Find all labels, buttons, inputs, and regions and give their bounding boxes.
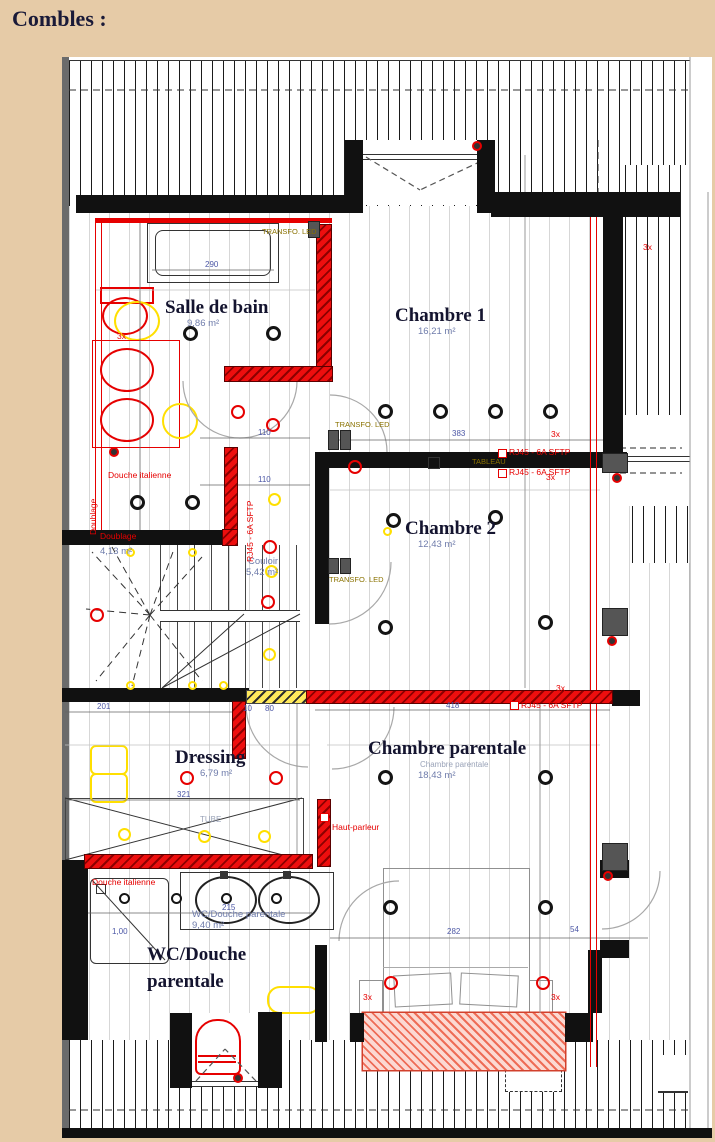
pillow-1	[393, 973, 453, 1008]
dim-dressing: 321	[177, 790, 190, 799]
wall-wc-right	[315, 945, 327, 1042]
label-douche-italienne-1: Douche italienne	[108, 470, 171, 480]
label-rj45-vertical: RJ45 - 6A SFTP	[245, 501, 255, 562]
label-rj45-2: RJ45 - 6A SFTP	[509, 467, 570, 477]
room-area-chambre-1: 16,21 m²	[418, 326, 456, 337]
bathtub-inner	[155, 230, 271, 276]
page-title: Combles :	[12, 6, 107, 32]
dim-bed-right: 54	[570, 925, 579, 934]
spot-yellow-icon	[268, 493, 281, 506]
label-3x: 3x	[551, 429, 560, 439]
spot-icon	[433, 404, 448, 419]
room-label-wc-small: WC/Douche parentale	[192, 909, 285, 920]
label-3x: 3x	[643, 242, 652, 252]
dim-couloir-b: 110	[258, 475, 271, 484]
dot-yellow-icon	[188, 681, 197, 690]
room-label-salle-de-bain: Salle de bain	[165, 297, 268, 319]
bed-foldline	[383, 967, 528, 968]
room-label-chambre-1: Chambre 1	[395, 305, 486, 327]
tableau-box-icon	[428, 457, 440, 469]
window-wc	[192, 1081, 258, 1087]
sink-ghost	[162, 403, 198, 439]
room-area-wc: 9,40 m²	[192, 920, 224, 931]
spot-icon	[543, 404, 558, 419]
spot-icon	[488, 404, 503, 419]
room-area-chambre-parentale: 18,43 m²	[418, 770, 456, 781]
spot-icon	[538, 615, 553, 630]
room-label-wc-line1: WC/Douche	[147, 944, 246, 966]
knob-icon	[171, 893, 182, 904]
window-ch1	[363, 154, 477, 160]
dim-ch1: 383	[452, 429, 465, 438]
transfo-icon	[340, 430, 351, 450]
room-area-chambre-2: 12,43 m²	[418, 539, 456, 550]
label-transfo-led-1: TRANSFO. LED	[262, 227, 317, 236]
wall-terrace-right	[565, 1013, 593, 1042]
bay-right-window	[620, 456, 690, 462]
spot-red-icon	[384, 976, 398, 990]
plan-bottom-edge	[62, 1128, 712, 1138]
room-area-couloir: 5,42 m²	[246, 567, 278, 578]
dormer-right-bottom	[658, 1055, 688, 1093]
speaker-square-icon	[320, 813, 329, 822]
spot-icon	[538, 900, 553, 915]
dim-10: 10	[243, 704, 252, 713]
spot-red-icon	[231, 405, 245, 419]
lining-red-top	[95, 218, 332, 223]
spot-icon	[386, 513, 401, 528]
toilet-wc-line1	[198, 1055, 236, 1057]
lining-red-left	[95, 218, 102, 530]
wall-right-upper	[603, 217, 623, 455]
ywall-mid	[247, 691, 309, 703]
wall-stair-bottom	[62, 688, 249, 702]
label-doublage-vertical: Doublage	[88, 499, 98, 535]
rj45-square-icon	[510, 701, 519, 710]
label-rj45-1: RJ45 - 6A SFTP	[509, 447, 570, 457]
dot-yellow-icon	[219, 681, 228, 690]
label-transfo-led-3: TRANSFO. LED	[329, 575, 384, 584]
rwall-sdb-vert	[317, 225, 331, 368]
plug-right-2-icon	[607, 636, 617, 646]
dot-yellow-icon	[188, 548, 197, 557]
label-rj45-3: RJ45 - 6A SFTP	[521, 700, 582, 710]
label-3x: 3x	[551, 992, 560, 1002]
spot-yellow-icon	[118, 828, 131, 841]
label-3x: 3x	[117, 331, 126, 341]
wardrobe	[65, 798, 304, 862]
wall-top-left	[76, 195, 345, 213]
spot-yellow-icon	[263, 648, 276, 661]
knob-icon	[271, 893, 282, 904]
dressing-box-2	[90, 773, 128, 803]
spot-icon	[378, 620, 393, 635]
label-3x: 3x	[556, 683, 565, 693]
transfo-icon	[328, 430, 339, 450]
wall-left-lower	[62, 860, 88, 1040]
label-3x: 3x	[363, 992, 372, 1002]
wall-dormer-left	[345, 140, 363, 213]
spot-icon	[383, 900, 398, 915]
spot-icon	[266, 326, 281, 341]
rwall-stair-stub	[223, 530, 237, 545]
rwall-sdb-horiz	[225, 367, 332, 381]
wall-dormer-wc-left	[170, 1013, 192, 1088]
plug-dormer-top-icon	[472, 141, 482, 151]
toilet-wc-line2	[198, 1061, 236, 1063]
transfo-icon	[328, 558, 339, 574]
plug-right-1-icon	[612, 473, 622, 483]
dim-wc: 215	[222, 903, 235, 912]
rwall-parentale-stub	[318, 800, 330, 866]
sink-bath-2	[100, 398, 154, 442]
spot-red-icon	[536, 976, 550, 990]
toilet-wc	[195, 1019, 241, 1075]
dim-80: 80	[265, 704, 274, 713]
wall-stair-top	[62, 530, 223, 545]
wall-terrace-left	[350, 1013, 364, 1042]
knob-icon	[119, 893, 130, 904]
spot-red-icon	[348, 460, 362, 474]
room-label-chambre-2: Chambre 2	[405, 518, 496, 540]
page: { "page": { "title": "Combles :" }, "roo…	[0, 0, 715, 1142]
dim-tub: 290	[205, 260, 218, 269]
dormer-ch1	[363, 140, 477, 205]
rwall-douche	[225, 448, 237, 532]
label-doublage-horizontal: Doublage	[100, 531, 136, 541]
spot-red-icon	[269, 771, 283, 785]
spot-icon	[378, 404, 393, 419]
wall-mid-endcap	[612, 690, 640, 706]
label-3x: 3x	[546, 472, 555, 482]
socket-right-1	[602, 453, 628, 473]
room-ghost-chambre-parentale: Chambre parentale	[420, 760, 488, 769]
transfo-icon	[340, 558, 351, 574]
spot-red-icon	[263, 540, 277, 554]
room-label-dressing: Dressing	[175, 747, 245, 769]
spot-icon	[538, 770, 553, 785]
rj45-square-icon	[498, 469, 507, 478]
wall-top-right	[491, 192, 680, 217]
dressing-box-1	[90, 745, 128, 775]
toilet-bath-tank	[100, 287, 154, 304]
dot-yellow-icon	[383, 527, 392, 536]
spot-icon	[378, 770, 393, 785]
pillow-2	[459, 973, 519, 1008]
label-douche-italienne-2: Douche italienne	[92, 877, 155, 887]
socket-right-2	[602, 608, 628, 636]
spot-red-icon	[90, 608, 104, 622]
fixture-ghost-yellow	[267, 986, 321, 1014]
plug-right-3-icon	[603, 871, 613, 881]
dim-couloir-a: 110	[258, 428, 271, 437]
spot-red-icon	[261, 595, 275, 609]
dim-bed: 282	[447, 927, 460, 936]
tap-1	[220, 871, 228, 879]
sink-bath-1	[100, 348, 154, 392]
terrace-hatch	[363, 1013, 565, 1070]
plug-douche-icon	[109, 447, 119, 457]
spot-red-icon	[180, 771, 194, 785]
wall-couloir	[315, 452, 329, 624]
spot-icon	[130, 495, 145, 510]
dim-wc-left: 1,00	[112, 927, 128, 936]
label-tube: TUBE	[200, 815, 221, 824]
dim-parentale-top: 418	[446, 701, 459, 710]
roof-hatch-right-lower	[632, 506, 690, 563]
room-label-wc-line2: parentale	[147, 971, 224, 993]
spot-yellow-icon	[258, 830, 271, 843]
socket-right-3	[602, 843, 628, 871]
wall-dormer-wc-right	[258, 1012, 282, 1088]
spot-yellow-icon	[198, 830, 211, 843]
room-area-palier: 4,13 m²	[100, 546, 132, 557]
room-label-chambre-parentale: Chambre parentale	[368, 738, 526, 760]
label-tableau: TABLEAU	[472, 457, 506, 466]
rwall-wc-top	[85, 855, 312, 868]
spot-icon	[185, 495, 200, 510]
room-area-salle-de-bain: 9,86 m²	[187, 318, 219, 329]
room-area-dressing: 6,79 m²	[200, 768, 232, 779]
plug-dormer-wc-icon	[233, 1073, 243, 1083]
lining-red-right	[590, 217, 597, 1067]
dot-yellow-icon	[126, 681, 135, 690]
wall-bay-divider-2	[600, 940, 629, 958]
dim-dressing-top: 201	[97, 702, 110, 711]
label-transfo-led-2: TRANSFO. LED	[335, 420, 390, 429]
label-haut-parleur: Haut-parleur	[332, 822, 379, 832]
floor-plan: Salle de bain 9,86 m² Chambre 1 16,21 m²…	[62, 57, 712, 1138]
tap-2	[283, 871, 291, 879]
stair-rail	[160, 610, 300, 622]
